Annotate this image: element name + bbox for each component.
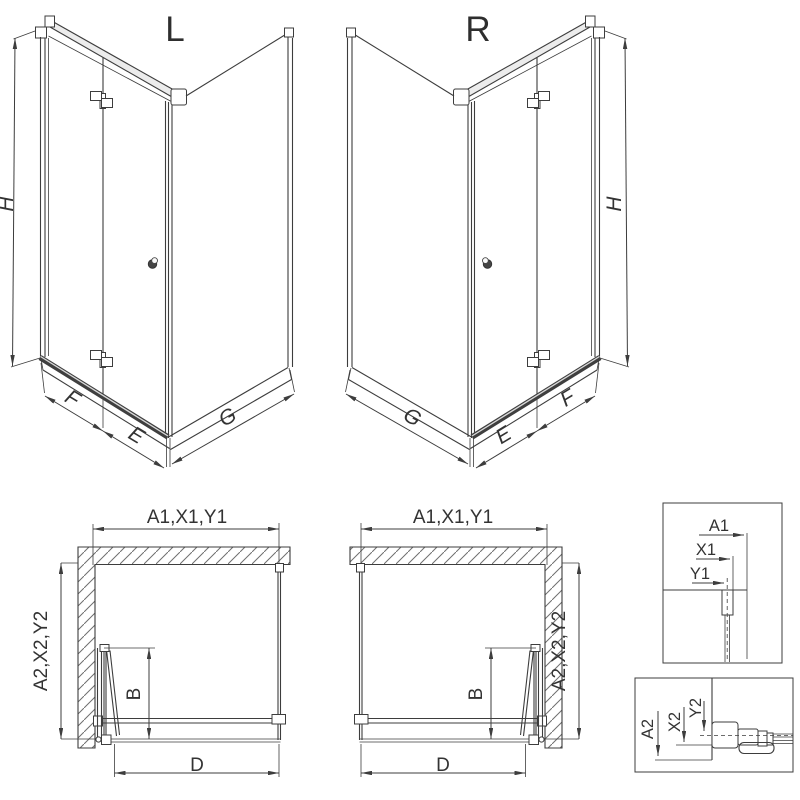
detail-width-dim-inner: Y1	[690, 565, 710, 583]
plan-left-dim-width: A1,X1,Y1	[147, 507, 227, 528]
plan-left-wall	[78, 547, 290, 748]
detail-depth-dim-inner: Y2	[687, 698, 705, 718]
plan-right-dim-entry: D	[436, 755, 450, 776]
iso-right-dim-height: H	[603, 196, 626, 212]
iso-right-label: R	[465, 10, 490, 49]
technical-drawing-canvas: L R H F E G H F E G A1,X1,Y1 A2,X2,Y2 B …	[0, 0, 800, 800]
plan-right-dim-width: A1,X1,Y1	[413, 507, 493, 528]
iso-left-label: L	[165, 10, 184, 49]
plan-left-dim-entry: D	[190, 755, 204, 776]
plan-left-dim-depth: A2,X2,Y2	[31, 611, 52, 691]
labels-layer: L R H F E G H F E G A1,X1,Y1 A2,X2,Y2 B …	[0, 10, 729, 776]
detail-width-dim-mid: X1	[696, 541, 716, 559]
detail-depth-dim-mid: X2	[666, 712, 684, 732]
detail-width-dim-outer: A1	[709, 517, 729, 535]
shower-enclosure-diagram: L R H F E G H F E G A1,X1,Y1 A2,X2,Y2 B …	[0, 0, 800, 800]
iso-right-view-geometry	[346, 16, 630, 468]
plan-right-wall	[350, 547, 562, 748]
plan-right-dim-door-projection: B	[466, 688, 487, 701]
detail-depth-dim-outer: A2	[639, 719, 657, 739]
iso-left-dim-height: H	[0, 196, 18, 212]
detail-box-depth	[635, 678, 793, 772]
plan-left-dim-door-projection: B	[124, 688, 145, 701]
iso-left-view-geometry	[11, 16, 295, 468]
plan-right-dim-depth: A2,X2,Y2	[549, 611, 570, 691]
